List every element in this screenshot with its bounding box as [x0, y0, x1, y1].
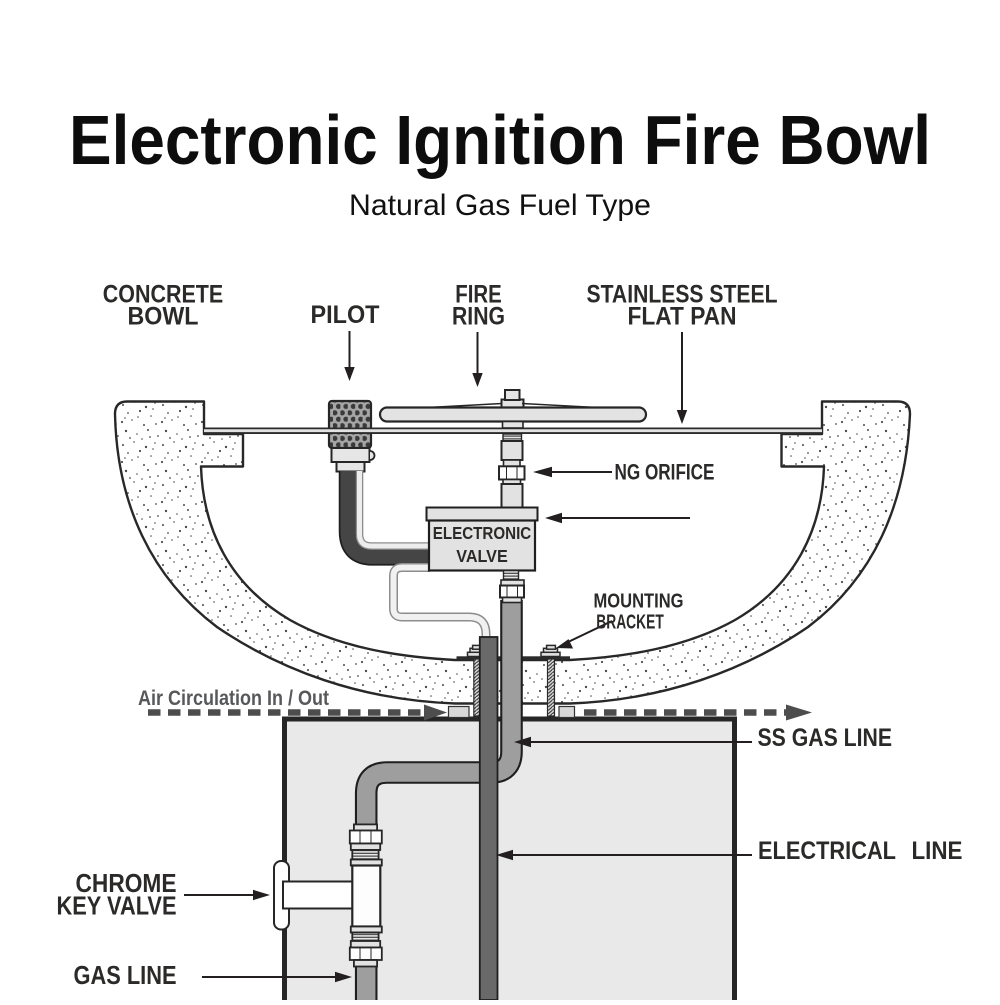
svg-text:PILOT: PILOT: [311, 301, 380, 329]
svg-text:GAS LINE: GAS LINE: [74, 960, 177, 990]
svg-text:KEY VALVE: KEY VALVE: [57, 891, 177, 921]
svg-text:Electronic Ignition Fire Bowl: Electronic Ignition Fire Bowl: [69, 101, 931, 179]
svg-text:ELECTRONIC: ELECTRONIC: [433, 523, 532, 543]
svg-text:ELECTRICAL: ELECTRICAL: [758, 837, 896, 865]
svg-text:MOUNTING: MOUNTING: [594, 590, 684, 613]
svg-text:Air Circulation In / Out: Air Circulation In / Out: [138, 687, 329, 710]
svg-text:VALVE: VALVE: [456, 546, 508, 566]
svg-text:RING: RING: [452, 303, 505, 331]
svg-text:SS GAS LINE: SS GAS LINE: [758, 724, 893, 752]
svg-text:FLAT PAN: FLAT PAN: [628, 303, 737, 331]
svg-text:Natural Gas Fuel Type: Natural Gas Fuel Type: [349, 189, 651, 222]
svg-text:NG ORIFICE: NG ORIFICE: [615, 460, 715, 485]
svg-text:BRACKET: BRACKET: [596, 611, 664, 634]
svg-text:BOWL: BOWL: [128, 303, 199, 331]
svg-text:LINE: LINE: [912, 837, 963, 865]
